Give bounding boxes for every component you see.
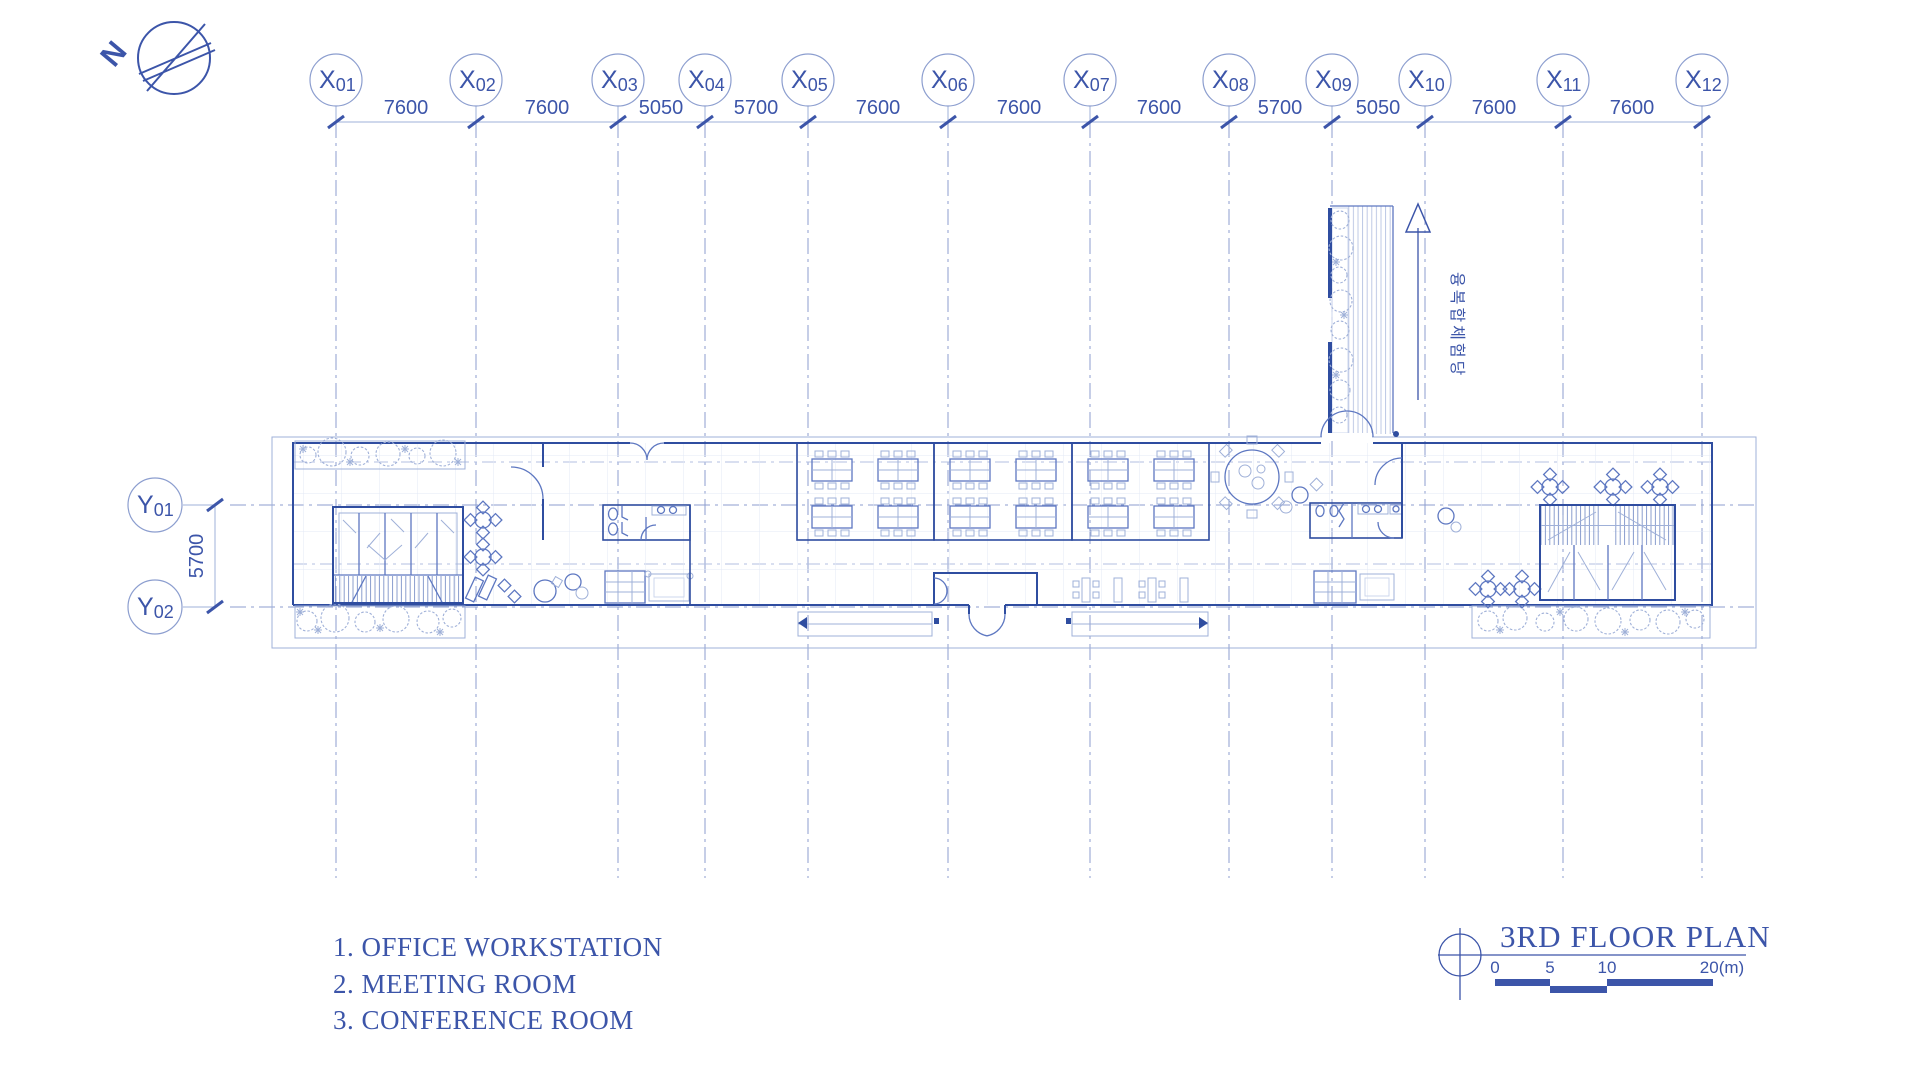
grid-bubble-x04: X04: [679, 54, 731, 106]
x-dim-1: 7600: [525, 97, 570, 119]
scale-tick-20: 20(m): [1700, 958, 1744, 977]
x-dim-2: 5050: [639, 97, 684, 119]
grid-bubble-x12: X12: [1676, 54, 1728, 106]
scale-tick-0: 0: [1490, 958, 1499, 977]
workstation-cluster: [878, 498, 918, 536]
scale-bar: 0 5 10 20(m): [1490, 958, 1744, 993]
grid-bubble-x06: X06: [922, 54, 974, 106]
workstation-cluster: [812, 498, 852, 536]
grid-bubble-x07: X07: [1064, 54, 1116, 106]
north-label: N: [94, 35, 133, 73]
x-dim-0: 7600: [384, 97, 429, 119]
louver-strip-right: [1066, 612, 1208, 636]
workstation-cluster: [1088, 451, 1128, 489]
drawing-title: 3RD FLOOR PLAN: [1500, 919, 1771, 954]
workstation-cluster: [812, 451, 852, 489]
grid-bubble-x02: X02: [450, 54, 502, 106]
x-dim-7: 5700: [1258, 97, 1303, 119]
grid-bubble-x05: X05: [782, 54, 834, 106]
x-dim-5: 7600: [997, 97, 1042, 119]
workstation-cluster: [878, 451, 918, 489]
workstation-cluster: [1088, 498, 1128, 536]
bridge-direction-arrow: [1406, 204, 1430, 400]
north-arrow: N: [94, 22, 215, 94]
scale-tick-5: 5: [1545, 958, 1554, 977]
grid-bubble-x11: X11: [1537, 54, 1589, 106]
bridge-walkway: [1321, 206, 1399, 441]
floor-plan-drawing: X01 X02 X03 X04 X05 X06 X07 X08 X09 X10 …: [0, 0, 1920, 1080]
workstation-cluster: [1154, 451, 1194, 489]
x-dim-9: 7600: [1472, 97, 1517, 119]
x-dim-10: 7600: [1610, 97, 1655, 119]
grid-bubble-x09: X09: [1306, 54, 1358, 106]
x-dim-8: 5050: [1356, 97, 1401, 119]
legend: 1. OFFICE WORKSTATION 2. MEETING ROOM 3.…: [333, 932, 663, 1035]
grid-bubble-x10: X10: [1399, 54, 1451, 106]
scale-tick-10: 10: [1598, 958, 1617, 977]
x-dim-4: 7600: [856, 97, 901, 119]
legend-item-office-workstation: 1. OFFICE WORKSTATION: [333, 932, 663, 962]
y-dim: 5700: [186, 534, 208, 579]
grid-bubble-y01: Y01: [128, 478, 182, 532]
workstation-cluster: [950, 498, 990, 536]
louver-strip-left: [798, 612, 939, 636]
workstation-cluster: [1016, 451, 1056, 489]
bridge-label: 융복합체험당: [1448, 272, 1467, 378]
title-block: 3RD FLOOR PLAN 0 5 10 20(m): [1438, 919, 1771, 1000]
planting-strip-south-right: [1472, 606, 1710, 638]
grid-bubble-x03: X03: [592, 54, 644, 106]
grid-bubble-x01: X01: [310, 54, 362, 106]
x-dimensions: 7600 7600 5050 5700 7600 7600 7600 5700 …: [384, 97, 1655, 119]
workstation-cluster: [1016, 498, 1056, 536]
legend-item-meeting-room: 2. MEETING ROOM: [333, 969, 577, 999]
grid-bubble-y02: Y02: [128, 580, 182, 634]
x-dim-3: 5700: [734, 97, 779, 119]
planting-strip-south-left: [295, 604, 465, 638]
legend-item-conference-room: 3. CONFERENCE ROOM: [333, 1005, 634, 1035]
workstation-cluster: [950, 451, 990, 489]
workstation-cluster: [1154, 498, 1194, 536]
grid-bubbles-y: Y01 Y02 5700: [128, 478, 208, 634]
grid-bubble-x08: X08: [1203, 54, 1255, 106]
x-dim-6: 7600: [1137, 97, 1182, 119]
building: 융복합체험당: [272, 204, 1756, 648]
